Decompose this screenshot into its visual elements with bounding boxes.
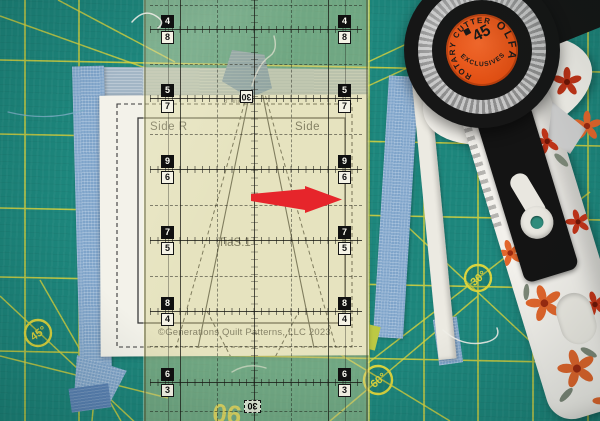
thread-blue [8,110,84,117]
thread [252,36,275,86]
thread [443,328,498,344]
quilting-cutting-mat-photo: 45° 60° 30° 60° 90 Side R [0,0,600,421]
stray-threads [0,0,600,421]
thread [132,13,162,28]
thread [232,366,266,372]
